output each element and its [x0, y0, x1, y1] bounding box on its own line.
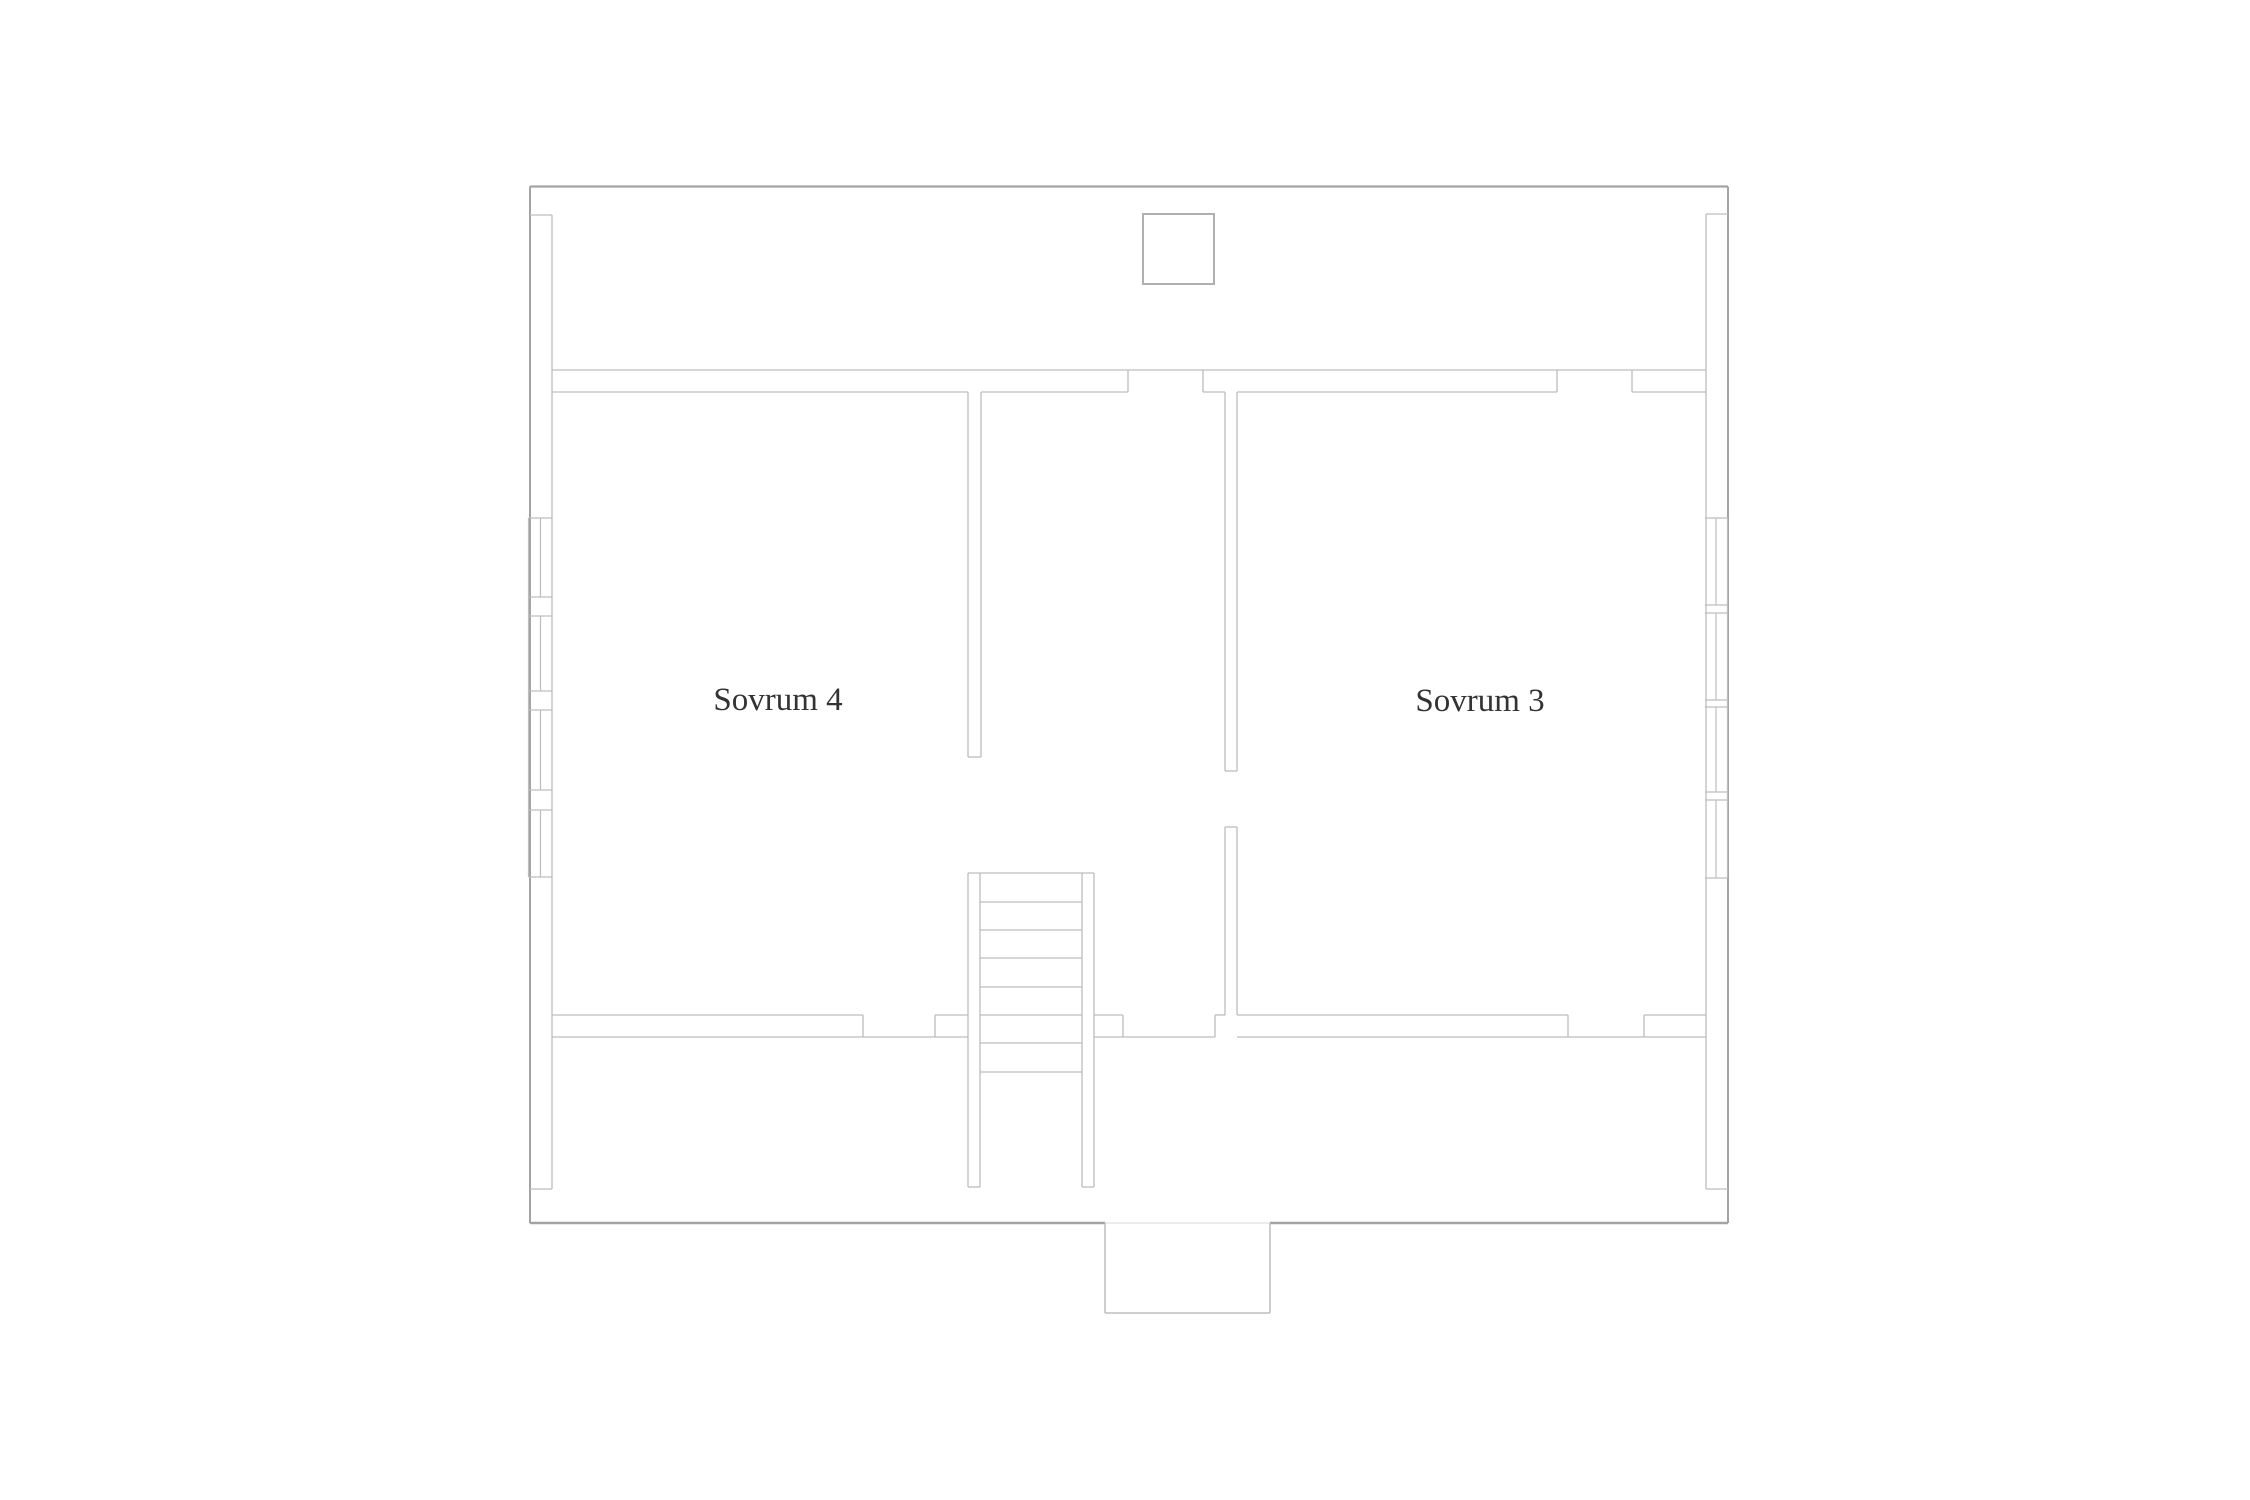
- floor-plan-canvas: Sovrum 4 Sovrum 3: [0, 0, 2250, 1500]
- room-label-sovrum-3: Sovrum 3: [1415, 683, 1544, 719]
- chimney-outline: [1143, 214, 1214, 284]
- room-label-sovrum-4: Sovrum 4: [713, 682, 842, 718]
- floor-plan-walls: [529, 187, 1729, 1314]
- floor-plan-page: Sovrum 4 Sovrum 3: [0, 0, 2250, 1500]
